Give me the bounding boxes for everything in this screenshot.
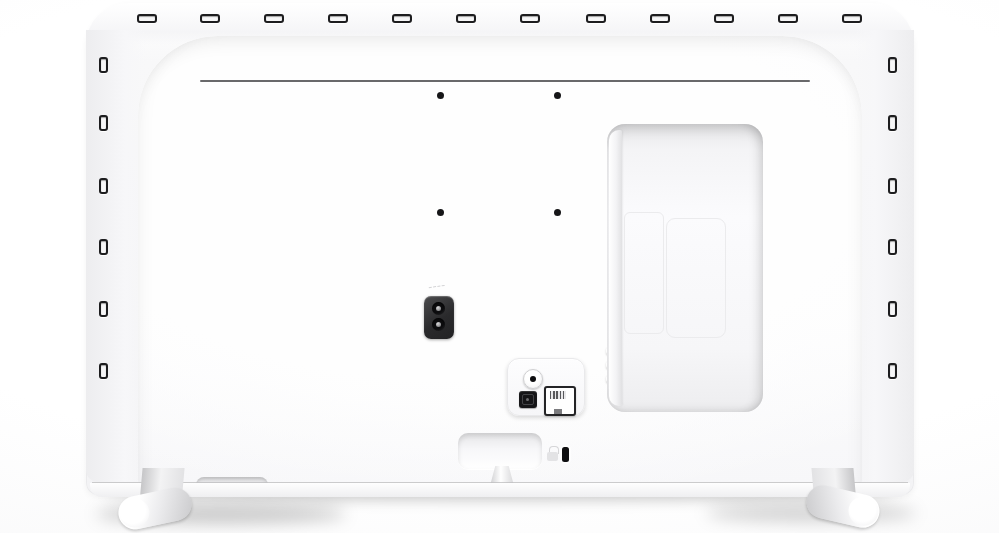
top-clip-slot (778, 14, 798, 23)
product-photo-stage (0, 0, 999, 533)
vent-groove-line (200, 80, 810, 82)
right-foot-endcap (846, 494, 882, 529)
vesa-mount-hole (554, 209, 561, 216)
top-clip-slot (264, 14, 284, 23)
top-clip-slot (520, 14, 540, 23)
top-clip-slot (586, 14, 606, 23)
top-clip-slot (650, 14, 670, 23)
left-foot-endcap (117, 496, 152, 531)
right-clip-slot (888, 178, 897, 194)
top-clip-slot (328, 14, 348, 23)
ac-power-inlet (424, 296, 454, 339)
ethernet-latch-notch (554, 409, 562, 414)
lock-icon-body (547, 452, 558, 461)
top-clip-slot (392, 14, 412, 23)
left-clip-slot (99, 178, 108, 194)
right-clip-slot (888, 301, 897, 317)
bay-panel-outline-column (624, 212, 664, 334)
left-clip-slot (99, 239, 108, 255)
ethernet-pins (550, 391, 566, 399)
top-clip-slot (842, 14, 862, 23)
left-clip-slot (99, 301, 108, 317)
power-pin-hole (432, 302, 445, 315)
tv-right-face (854, 30, 914, 482)
optical-port-dot (526, 398, 529, 401)
right-clip-slot (888, 239, 897, 255)
power-pin-hole (432, 318, 445, 331)
left-clip-slot (99, 115, 108, 131)
left-clip-slot (99, 57, 108, 73)
right-clip-slot (888, 363, 897, 379)
vesa-mount-hole (437, 92, 444, 99)
left-clip-slot (99, 363, 108, 379)
bay-panel-outline-tall (666, 218, 726, 338)
control-recess (458, 433, 542, 469)
top-clip-slot (714, 14, 734, 23)
vesa-mount-hole (554, 92, 561, 99)
optical-audio-port (519, 391, 537, 408)
kensington-lock-slot (562, 447, 569, 462)
top-clip-slot (200, 14, 220, 23)
tv-bottom-face (90, 483, 910, 497)
ethernet-port (544, 386, 576, 416)
right-clip-slot (888, 115, 897, 131)
antenna-jack (523, 369, 543, 389)
vesa-mount-hole (437, 209, 444, 216)
power-pin (436, 306, 441, 311)
power-pin (436, 322, 441, 327)
right-clip-slot (888, 57, 897, 73)
top-clip-slot (137, 14, 157, 23)
antenna-jack-hole (530, 376, 536, 382)
cable-channel-wall (609, 130, 622, 406)
tv-left-face (86, 30, 146, 482)
top-clip-slot (456, 14, 476, 23)
